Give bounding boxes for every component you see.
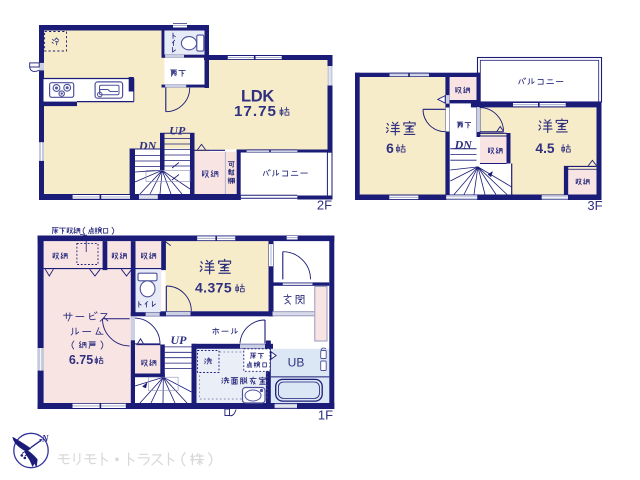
svg-text:UP: UP <box>171 333 188 347</box>
svg-text:4.375: 4.375 <box>195 280 232 296</box>
svg-text:UB: UB <box>288 356 305 370</box>
svg-text:DN: DN <box>454 138 474 152</box>
svg-text:6: 6 <box>386 141 394 156</box>
svg-text:2F: 2F <box>317 198 332 213</box>
svg-text:DN: DN <box>138 139 158 153</box>
svg-text:6.75: 6.75 <box>69 353 93 367</box>
svg-text:4.5: 4.5 <box>535 141 555 156</box>
svg-text:3F: 3F <box>587 198 602 213</box>
svg-text:UP: UP <box>169 124 186 138</box>
svg-text:17.75: 17.75 <box>234 103 277 120</box>
svg-text:1F: 1F <box>318 408 333 423</box>
svg-text:N: N <box>41 434 49 444</box>
